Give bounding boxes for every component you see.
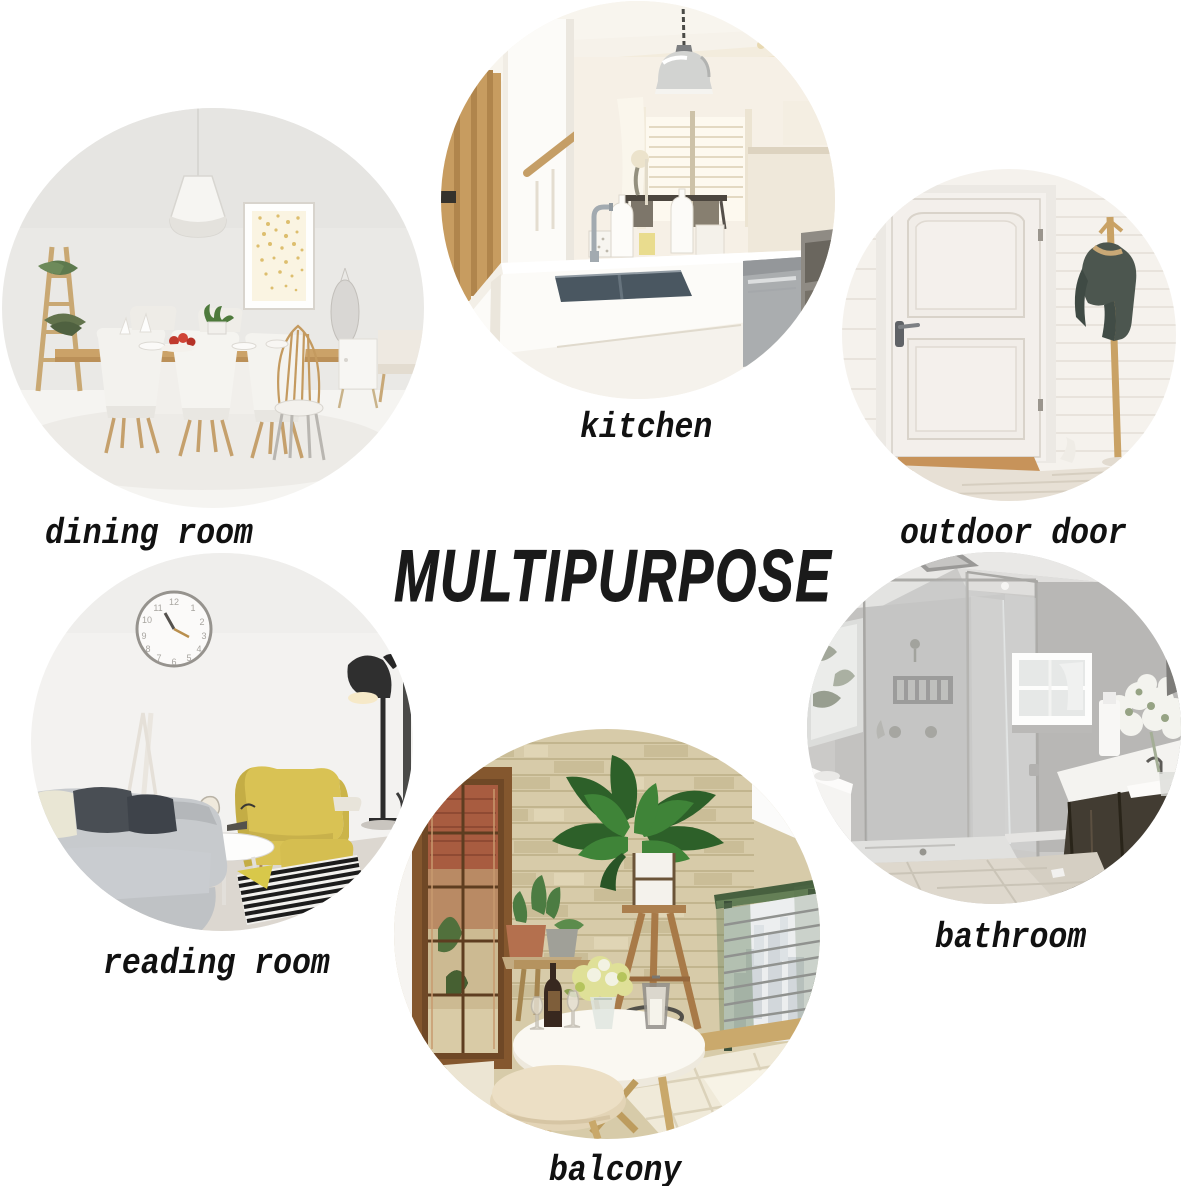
svg-text:11: 11: [153, 603, 162, 613]
svg-text:1: 1: [190, 603, 195, 613]
svg-text:8: 8: [145, 644, 150, 654]
svg-text:5: 5: [186, 653, 191, 663]
svg-text:7: 7: [156, 653, 161, 663]
svg-text:6: 6: [171, 657, 176, 667]
svg-text:3: 3: [201, 631, 206, 641]
svg-text:10: 10: [142, 615, 152, 625]
svg-text:12: 12: [169, 597, 179, 607]
svg-text:4: 4: [196, 644, 201, 654]
svg-text:9: 9: [141, 631, 146, 641]
svg-text:2: 2: [199, 617, 204, 627]
